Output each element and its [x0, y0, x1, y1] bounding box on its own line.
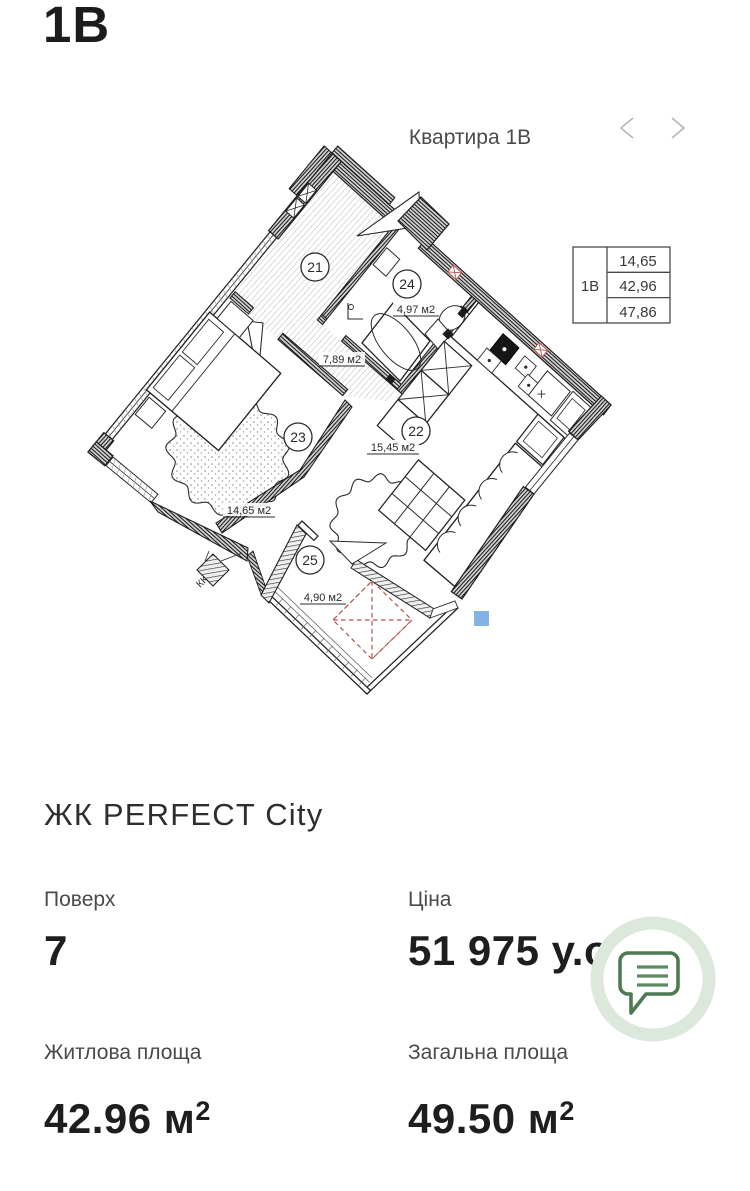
svg-text:1В: 1В: [581, 278, 599, 295]
svg-text:4,97 м2: 4,97 м2: [397, 304, 435, 316]
svg-text:14,65 м2: 14,65 м2: [227, 505, 271, 517]
svg-text:15,45 м2: 15,45 м2: [371, 442, 415, 454]
svg-text:Житлова площа: Житлова площа: [44, 1041, 202, 1064]
svg-text:21: 21: [307, 259, 323, 275]
svg-text:42.96 м2: 42.96 м2: [44, 1095, 211, 1142]
svg-text:4,90 м2: 4,90 м2: [304, 592, 342, 604]
svg-text:14,65: 14,65: [619, 253, 657, 270]
svg-text:42,96: 42,96: [619, 278, 657, 295]
svg-text:22: 22: [408, 423, 424, 439]
svg-text:49.50 м2: 49.50 м2: [408, 1095, 575, 1142]
svg-text:Квартира 1В: Квартира 1В: [409, 126, 531, 149]
svg-text:25: 25: [302, 552, 318, 568]
svg-text:ЖК PERFECT City: ЖК PERFECT City: [44, 797, 323, 832]
svg-text:23: 23: [290, 429, 306, 445]
svg-text:Поверх: Поверх: [44, 888, 116, 911]
svg-text:1B: 1B: [43, 0, 110, 53]
svg-text:7,89 м2: 7,89 м2: [323, 354, 361, 366]
svg-text:Ціна: Ціна: [408, 888, 452, 911]
svg-text:51 975 у.о: 51 975 у.о: [408, 927, 610, 974]
svg-text:47,86: 47,86: [619, 304, 657, 321]
svg-text:24: 24: [399, 276, 415, 292]
svg-text:Загальна площа: Загальна площа: [408, 1041, 568, 1064]
svg-text:7: 7: [44, 927, 67, 974]
